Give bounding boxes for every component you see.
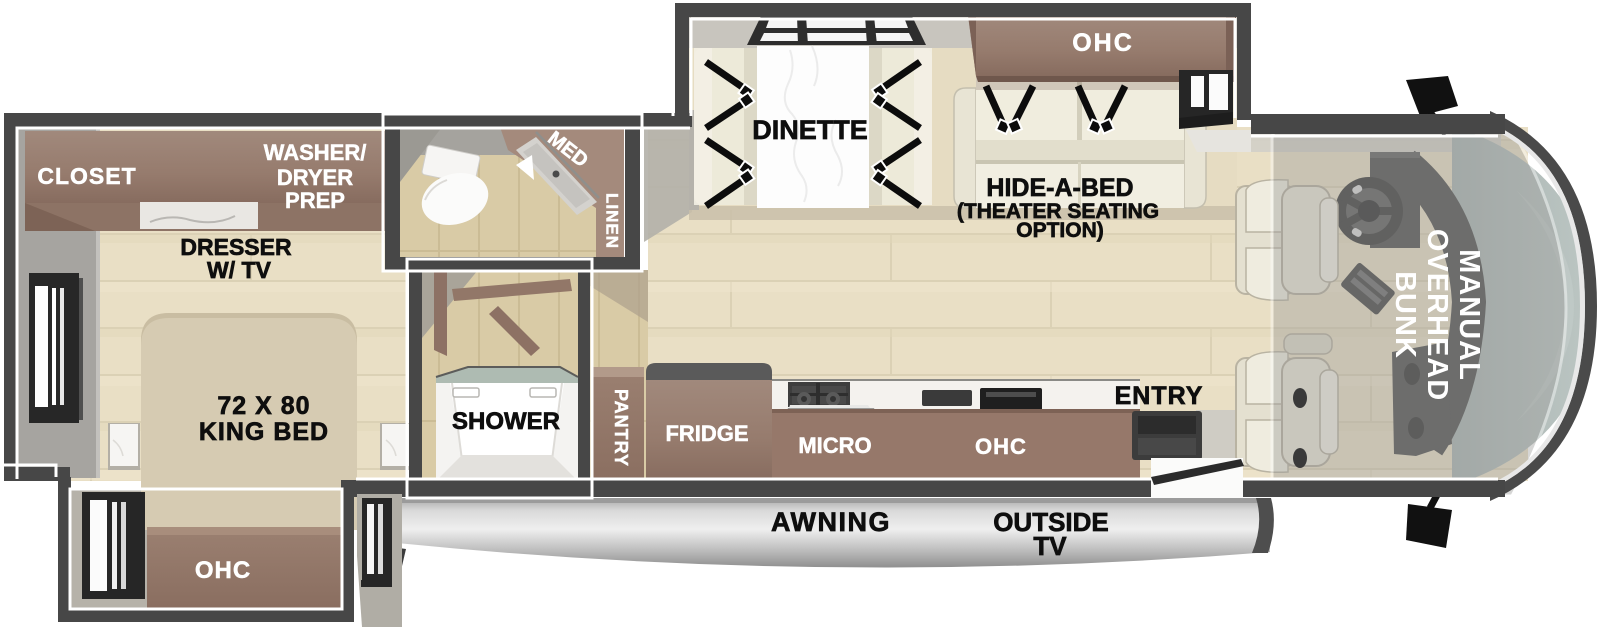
svg-text:W/ TV: W/ TV xyxy=(207,257,272,283)
svg-text:WASHER/: WASHER/ xyxy=(264,140,367,165)
svg-text:ENTRY: ENTRY xyxy=(1115,382,1204,410)
svg-text:OVERHEAD: OVERHEAD xyxy=(1421,229,1453,401)
svg-text:OHC: OHC xyxy=(195,557,251,584)
svg-text:DINETTE: DINETTE xyxy=(752,115,868,145)
svg-text:PREP: PREP xyxy=(285,188,345,213)
svg-text:HIDE-A-BED: HIDE-A-BED xyxy=(986,174,1133,202)
svg-text:DRYER: DRYER xyxy=(277,165,353,190)
svg-text:OPTION): OPTION) xyxy=(1016,219,1104,242)
svg-text:MICRO: MICRO xyxy=(798,433,871,458)
svg-text:OHC: OHC xyxy=(975,434,1027,459)
svg-text:MANUAL: MANUAL xyxy=(1453,249,1485,381)
svg-text:BUNK: BUNK xyxy=(1389,271,1421,359)
svg-text:PANTRY: PANTRY xyxy=(611,389,631,467)
svg-text:72 X 80: 72 X 80 xyxy=(217,392,310,420)
svg-text:CLOSET: CLOSET xyxy=(37,163,136,189)
svg-text:AWNING: AWNING xyxy=(771,507,891,537)
svg-text:KING BED: KING BED xyxy=(199,418,329,446)
svg-text:OHC: OHC xyxy=(1072,29,1134,57)
svg-text:FRIDGE: FRIDGE xyxy=(665,421,748,446)
svg-text:SHOWER: SHOWER xyxy=(452,408,560,435)
svg-text:LINEN: LINEN xyxy=(603,193,622,249)
svg-text:TV: TV xyxy=(1033,531,1067,561)
